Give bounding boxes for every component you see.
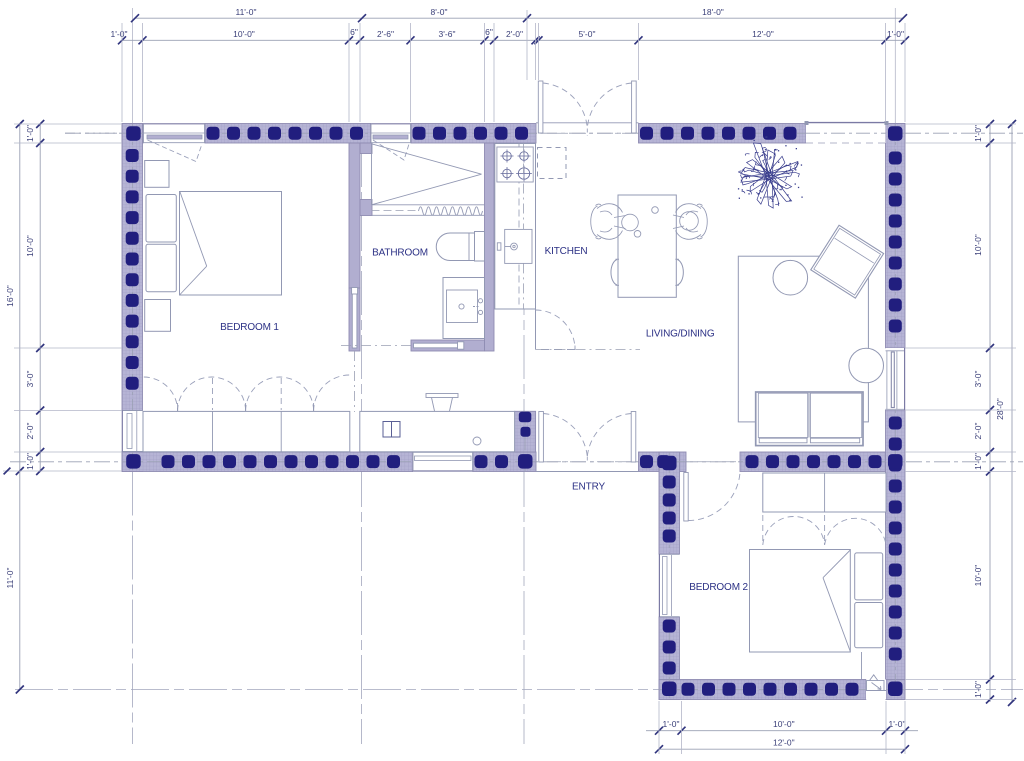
svg-text:11'-0": 11'-0" — [5, 567, 15, 588]
svg-text:6": 6" — [350, 27, 358, 37]
svg-text:1'-0": 1'-0" — [25, 453, 35, 470]
svg-text:2'-0": 2'-0" — [25, 423, 35, 440]
svg-text:12'-0": 12'-0" — [752, 29, 774, 39]
svg-text:10'-0": 10'-0" — [973, 234, 983, 256]
svg-text:18'-0": 18'-0" — [702, 7, 724, 17]
svg-text:12'-0": 12'-0" — [773, 738, 795, 748]
svg-text:10'-0": 10'-0" — [773, 719, 795, 729]
svg-text:1'-0": 1'-0" — [25, 125, 35, 142]
svg-text:LIVING/DINING: LIVING/DINING — [646, 329, 715, 340]
svg-text:1'-0": 1'-0" — [887, 29, 904, 39]
svg-text:BEDROOM 1: BEDROOM 1 — [220, 322, 279, 333]
svg-text:1'-0": 1'-0" — [973, 681, 983, 698]
svg-text:1'-0": 1'-0" — [889, 719, 906, 729]
svg-text:2'-6": 2'-6" — [377, 29, 394, 39]
svg-text:BEDROOM 2: BEDROOM 2 — [689, 582, 748, 593]
svg-text:ENTRY: ENTRY — [572, 482, 605, 493]
svg-text:10'-0": 10'-0" — [973, 565, 983, 587]
svg-text:BATHROOM: BATHROOM — [372, 248, 428, 259]
svg-text:10'-0": 10'-0" — [25, 235, 35, 257]
svg-text:KITCHEN: KITCHEN — [545, 246, 588, 257]
svg-text:3'-0": 3'-0" — [973, 371, 983, 388]
svg-text:8'-0": 8'-0" — [431, 7, 448, 17]
svg-text:1'-0": 1'-0" — [663, 719, 680, 729]
svg-text:2'-0": 2'-0" — [973, 423, 983, 440]
svg-text:3'-0": 3'-0" — [25, 371, 35, 388]
svg-text:3'-6": 3'-6" — [439, 29, 456, 39]
svg-text:11'-0": 11'-0" — [235, 7, 256, 17]
svg-text:6": 6" — [485, 27, 493, 37]
svg-text:1'-0": 1'-0" — [973, 453, 983, 470]
svg-text:16'-0": 16'-0" — [5, 285, 15, 307]
svg-text:2'-0": 2'-0" — [506, 29, 523, 39]
svg-text:1'-0": 1'-0" — [111, 29, 128, 39]
svg-text:5'-0": 5'-0" — [579, 29, 596, 39]
svg-text:10'-0": 10'-0" — [233, 29, 255, 39]
svg-text:28'-0": 28'-0" — [995, 398, 1005, 420]
svg-text:1'-0": 1'-0" — [973, 125, 983, 142]
